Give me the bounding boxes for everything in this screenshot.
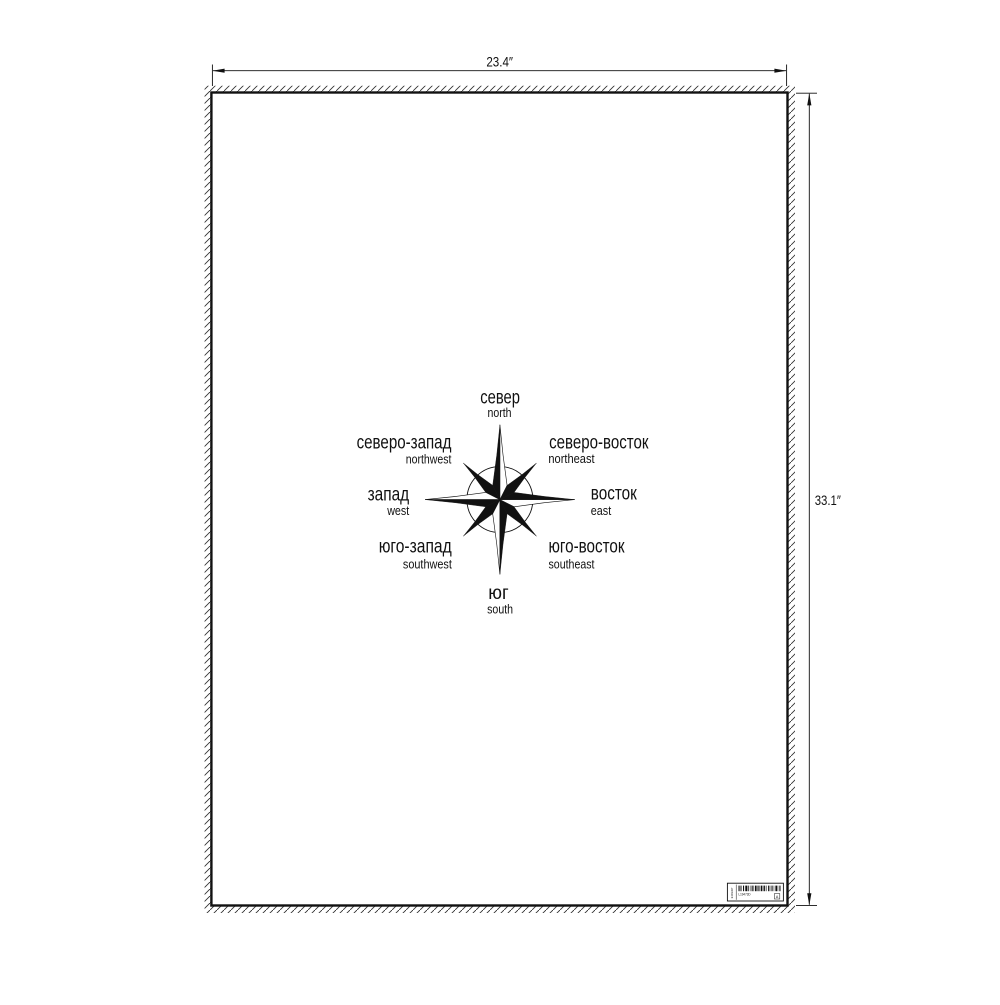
svg-text:L19473D: L19473D (739, 892, 751, 896)
svg-text:west: west (386, 503, 409, 518)
svg-text:southwest: southwest (403, 557, 452, 572)
svg-text:14094P: 14094P (730, 887, 734, 898)
svg-text:southeast: southeast (549, 557, 595, 572)
svg-text:south: south (487, 602, 513, 617)
svg-text:23.4″: 23.4″ (486, 54, 513, 70)
svg-text:юго-восток: юго-восток (549, 537, 625, 558)
svg-text:north: north (488, 405, 512, 420)
svg-text:восток: восток (591, 484, 637, 505)
svg-text:east: east (591, 503, 612, 518)
svg-text:northeast: northeast (548, 451, 594, 466)
svg-text:юго-запад: юго-запад (379, 537, 452, 558)
svg-text:северо-запад: северо-запад (357, 432, 452, 453)
svg-text:northwest: northwest (406, 451, 452, 466)
svg-text:33.1″: 33.1″ (815, 492, 841, 508)
